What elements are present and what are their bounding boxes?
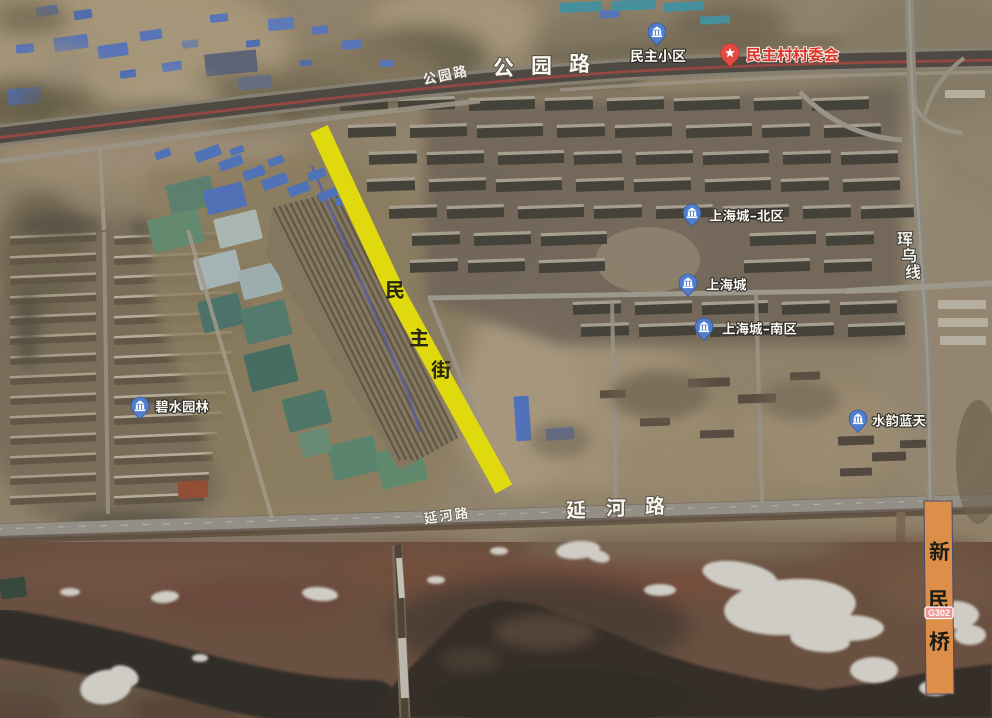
svg-text:G302: G302 (928, 608, 950, 618)
